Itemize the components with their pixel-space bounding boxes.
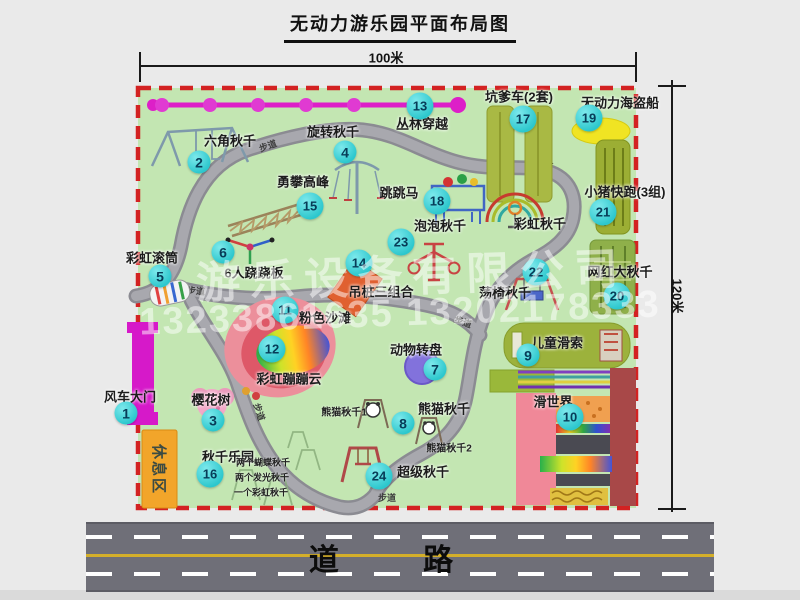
attraction-label-6: 6人跷跷板 [224, 263, 283, 282]
attraction-label-14: 吊桩三组合 [348, 282, 413, 301]
attraction-label-18: 跳跳马 [379, 183, 418, 202]
attraction-badge-7: 7 [424, 358, 447, 381]
attraction-badge-21: 21 [590, 199, 617, 226]
attraction-label-7: 动物转盘 [390, 340, 442, 359]
attraction-label-23: 泡泡秋千 [414, 216, 466, 235]
attraction-label-15: 勇攀高峰 [277, 172, 329, 191]
attraction-badge-22: 22 [523, 259, 550, 286]
attraction-badge-2: 2 [188, 151, 211, 174]
attraction-badge-3: 3 [202, 409, 225, 432]
rest-area-label: 休息区 [142, 430, 177, 508]
attraction-label-21: 小猪快跑(3组) [585, 182, 666, 201]
road-label: 道 路 [309, 535, 491, 579]
road: 道 路 [86, 522, 714, 592]
attraction-badge-1: 1 [115, 402, 138, 425]
attraction-label-5: 彩虹滚筒 [126, 248, 178, 267]
attraction-label-4: 旋转秋千 [307, 122, 359, 141]
attraction-label-24: 彩虹秋千 [514, 214, 566, 233]
attraction-label-20: 网红大秋千 [587, 262, 652, 281]
attraction-label-22: 荡椅秋千 [479, 283, 531, 302]
attraction-badge-15: 15 [297, 193, 324, 220]
attraction-badge-20: 20 [604, 283, 631, 310]
attraction-badge-10: 10 [557, 404, 584, 431]
attraction-badge-4: 4 [334, 141, 357, 164]
note-label-3: 两个发光秋千 [235, 471, 289, 484]
attraction-label-11: 粉色沙滩 [299, 308, 351, 327]
park-layout-map: 无动力游乐园平面布局图 100米 120米 [0, 0, 800, 600]
attraction-badge-6: 6 [212, 241, 235, 264]
attraction-badge-8: 8 [392, 412, 415, 435]
attraction-badge-11: 11 [272, 297, 299, 324]
attraction-label-8: 熊猫秋千 [418, 399, 470, 418]
attraction-badge-12: 12 [259, 336, 286, 363]
note-label-4: 一个彩虹秋千 [234, 486, 288, 499]
note-label-1: 熊猫秋千2 [426, 440, 472, 455]
attraction-label-24: 超级秋千 [397, 462, 449, 481]
attraction-label-17: 坑爹车(2套) [485, 87, 553, 106]
attraction-badge-13: 13 [407, 93, 434, 120]
attraction-label-12: 彩虹蹦蹦云 [256, 369, 321, 388]
attraction-label-2: 六角秋千 [204, 131, 256, 150]
attraction-label-9: 儿童滑索 [531, 333, 583, 352]
attraction-badge-17: 17 [510, 106, 537, 133]
attraction-badge-14: 14 [346, 250, 373, 277]
attraction-badge-24: 24 [366, 463, 393, 490]
attraction-badge-18: 18 [424, 188, 451, 215]
attraction-badge-9: 9 [517, 344, 540, 367]
attraction-label-3: 樱花树 [191, 390, 230, 409]
attraction-badge-16: 16 [197, 461, 224, 488]
attraction-badge-23: 23 [388, 229, 415, 256]
note-label-0: 熊猫秋千1 [321, 404, 367, 419]
svg-text:步道: 步道 [378, 492, 396, 503]
attraction-badge-19: 19 [576, 105, 603, 132]
note-label-2: 两个蝴蝶秋千 [236, 456, 290, 469]
attraction-badge-5: 5 [149, 265, 172, 288]
